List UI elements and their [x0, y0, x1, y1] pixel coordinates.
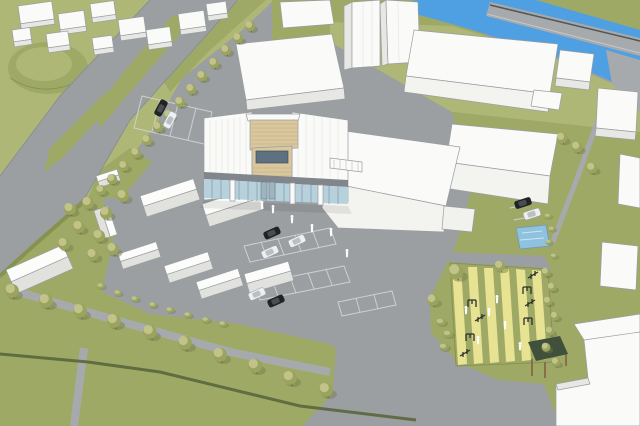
massing-tower — [352, 0, 380, 68]
hall-wing — [442, 206, 475, 232]
facade-pier — [290, 183, 295, 204]
massing-block — [92, 35, 114, 55]
massing-block — [531, 90, 562, 110]
massing-block — [600, 242, 638, 290]
massing-block — [146, 27, 173, 50]
terraced-mound-top — [16, 47, 72, 81]
pond — [516, 225, 550, 249]
entrance-door — [269, 182, 275, 199]
pond-group — [516, 225, 550, 249]
rendering-stage — [0, 0, 640, 426]
rooftop-timber-volume — [250, 120, 298, 150]
massing-block — [556, 50, 594, 82]
site-rendering — [0, 0, 640, 426]
massing-block — [618, 154, 640, 208]
massing-block — [46, 31, 70, 53]
facade-pier — [318, 185, 323, 205]
facade-pier — [230, 180, 235, 201]
main-building — [200, 112, 362, 214]
massing-block — [206, 1, 228, 21]
massing-block — [178, 10, 207, 34]
tower-side — [344, 2, 352, 70]
entrance-door — [261, 182, 267, 199]
massing-block — [12, 27, 32, 46]
massing-block — [280, 0, 334, 28]
massing-block — [18, 1, 55, 29]
massing-block — [58, 10, 87, 34]
massing-block — [90, 1, 116, 23]
massing-block — [118, 16, 147, 40]
upper-ribbon-window — [256, 151, 288, 163]
massing-block — [596, 88, 638, 132]
